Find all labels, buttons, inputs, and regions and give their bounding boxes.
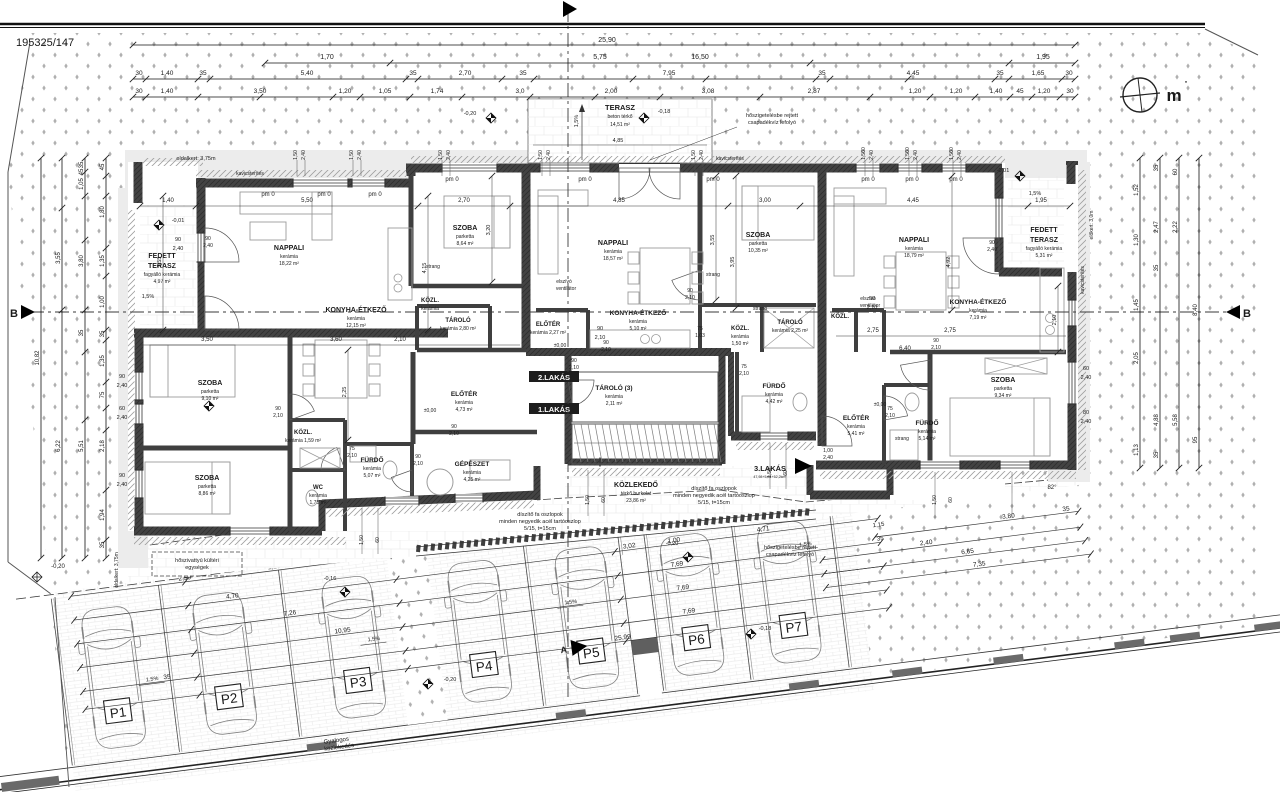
- svg-text:kerámia: kerámia: [605, 394, 623, 400]
- svg-text:1,52: 1,52: [1134, 184, 1140, 196]
- svg-text:KONYHA-ÉTKEZŐ: KONYHA-ÉTKEZŐ: [950, 297, 1007, 306]
- svg-text:45: 45: [1016, 88, 1024, 95]
- svg-text:kerámia: kerámia: [629, 319, 647, 325]
- svg-text:2,40: 2,40: [117, 383, 128, 389]
- svg-text:strang: strang: [706, 272, 720, 278]
- svg-text:TÁROLÓ: TÁROLÓ: [445, 316, 471, 324]
- svg-text:minden negyedik acél tartóoszl: minden negyedik acél tartóoszlop: [499, 519, 581, 525]
- svg-text:KÖZL.: KÖZL.: [731, 325, 749, 332]
- svg-text:3,0: 3,0: [515, 88, 524, 95]
- svg-text:35: 35: [409, 70, 417, 77]
- svg-text:35: 35: [79, 161, 85, 168]
- svg-text:-0,18: -0,18: [759, 626, 772, 632]
- svg-text:35: 35: [1154, 164, 1160, 171]
- svg-text:2,40: 2,40: [1081, 375, 1092, 381]
- svg-text:díszítő fa oszlopok: díszítő fa oszlopok: [517, 512, 563, 518]
- svg-text:kerámia: kerámia: [731, 334, 749, 340]
- svg-text:45: 45: [79, 168, 85, 175]
- svg-text:2,70: 2,70: [458, 198, 470, 204]
- svg-text:75: 75: [349, 446, 355, 452]
- svg-text:90: 90: [451, 424, 457, 430]
- svg-text:3,95: 3,95: [730, 257, 736, 268]
- svg-text:1,5%: 1,5%: [142, 294, 155, 300]
- svg-text:5,07 m²: 5,07 m²: [364, 473, 381, 479]
- svg-text:1,00: 1,00: [823, 448, 833, 454]
- svg-text:35: 35: [519, 70, 527, 77]
- svg-text:16,50: 16,50: [691, 54, 709, 61]
- svg-text:FÜRDŐ: FÜRDŐ: [762, 381, 785, 390]
- svg-text:95: 95: [1193, 436, 1199, 443]
- svg-text:1,70: 1,70: [320, 54, 334, 61]
- svg-text:1,5%: 1,5%: [1029, 191, 1042, 197]
- svg-text:kerámia: kerámia: [463, 470, 481, 476]
- svg-text:NAPPALI: NAPPALI: [598, 240, 628, 247]
- svg-text:1,30: 1,30: [1134, 234, 1140, 246]
- svg-text:-0,20: -0,20: [666, 541, 679, 547]
- svg-text:4,85: 4,85: [613, 198, 625, 204]
- svg-text:2,05: 2,05: [1134, 352, 1140, 364]
- svg-text:35: 35: [79, 329, 85, 336]
- svg-text:1,50: 1,50: [585, 495, 591, 505]
- svg-text:2,10: 2,10: [569, 365, 579, 371]
- svg-text:hőszivattyú kültéri: hőszivattyú kültéri: [175, 558, 219, 564]
- svg-text:parketta: parketta: [198, 484, 216, 490]
- svg-text:1,95: 1,95: [1035, 198, 1047, 204]
- svg-text:35: 35: [1062, 505, 1070, 513]
- svg-text:kerámia: kerámia: [604, 249, 622, 255]
- svg-text:90: 90: [119, 374, 125, 380]
- svg-text:parketta: parketta: [749, 241, 767, 247]
- svg-text:18,79 m²: 18,79 m²: [904, 253, 924, 259]
- svg-text:4,92: 4,92: [946, 257, 952, 268]
- svg-text:2,40: 2,40: [546, 150, 552, 160]
- svg-text:parketta: parketta: [456, 234, 474, 240]
- svg-text:60: 60: [1173, 168, 1179, 175]
- svg-text:2,11 m²: 2,11 m²: [606, 401, 623, 407]
- svg-text:18,22 m²: 18,22 m²: [279, 261, 299, 267]
- svg-text:23,86 m²: 23,86 m²: [626, 498, 646, 504]
- svg-text:2,10: 2,10: [885, 413, 895, 419]
- svg-text:pm 0: pm 0: [706, 177, 720, 183]
- svg-text:3,60: 3,60: [330, 337, 342, 343]
- svg-text:5,40: 5,40: [301, 70, 314, 77]
- svg-text:előkert: 3,0m: előkert: 3,0m: [1089, 211, 1095, 240]
- svg-text:TÁROLÓ (3): TÁROLÓ (3): [595, 383, 632, 392]
- svg-text:csapadékvíz lefolyó: csapadékvíz lefolyó: [766, 552, 814, 558]
- svg-text:3,20: 3,20: [486, 225, 492, 236]
- svg-text:1,13: 1,13: [1134, 444, 1140, 456]
- svg-text:kerámia: kerámia: [309, 493, 327, 499]
- svg-text:elszívó: elszívó: [860, 296, 876, 302]
- svg-text:SZOBA: SZOBA: [195, 475, 220, 482]
- svg-text:90: 90: [933, 338, 939, 344]
- svg-text:strang: strang: [753, 306, 767, 312]
- svg-text:3,55: 3,55: [56, 252, 62, 264]
- svg-text:30: 30: [1066, 88, 1074, 95]
- svg-text:4,85: 4,85: [613, 138, 624, 144]
- svg-text:KÖZLEKEDŐ: KÖZLEKEDŐ: [614, 480, 659, 489]
- svg-text:2,25: 2,25: [342, 387, 348, 398]
- svg-text:KONYHA-ÉTKEZŐ: KONYHA-ÉTKEZŐ: [610, 308, 667, 317]
- svg-text:kerámia: kerámia: [765, 392, 783, 398]
- svg-text:90: 90: [989, 240, 995, 246]
- svg-text:2,10: 2,10: [1052, 315, 1058, 326]
- svg-text:strang: strang: [895, 436, 909, 442]
- svg-text:2,40: 2,40: [1081, 419, 1092, 425]
- svg-text:2,40: 2,40: [173, 246, 184, 252]
- svg-text:1,95: 1,95: [1036, 54, 1050, 61]
- svg-text:-0,01: -0,01: [172, 218, 185, 224]
- svg-text:1,5%: 1,5%: [574, 115, 580, 128]
- svg-text:díszítő fa oszlopok: díszítő fa oszlopok: [691, 486, 737, 492]
- svg-text:90: 90: [119, 473, 125, 479]
- svg-text:P1: P1: [109, 704, 127, 721]
- svg-text:m: m: [1166, 86, 1181, 105]
- svg-text:ELŐTÉR: ELŐTÉR: [536, 320, 561, 328]
- svg-text:2,10: 2,10: [685, 295, 695, 301]
- svg-text:WC: WC: [313, 485, 324, 491]
- svg-text:6,40: 6,40: [899, 346, 911, 352]
- svg-text:1,03: 1,03: [695, 333, 705, 339]
- svg-text:3,00: 3,00: [759, 198, 771, 204]
- svg-text:35: 35: [1154, 451, 1160, 458]
- svg-text:5/15, t=15cm: 5/15, t=15cm: [698, 500, 730, 506]
- svg-text:P2: P2: [220, 690, 238, 707]
- svg-text:35: 35: [818, 70, 826, 77]
- svg-text:NAPPALI: NAPPALI: [899, 237, 929, 244]
- svg-text:1,50: 1,50: [691, 150, 697, 160]
- svg-text:SZOBA: SZOBA: [746, 232, 771, 239]
- svg-text:9,34 m²: 9,34 m²: [995, 393, 1012, 399]
- svg-text:1,20: 1,20: [1038, 88, 1051, 95]
- svg-text:oldalkert: 3,75m: oldalkert: 3,75m: [114, 552, 120, 588]
- svg-text:parketta: parketta: [201, 389, 219, 395]
- svg-text:-0,20: -0,20: [464, 111, 477, 117]
- svg-text:FÜRDŐ: FÜRDŐ: [360, 455, 383, 464]
- svg-text:kavicsterítés: kavicsterítés: [1080, 266, 1086, 294]
- svg-text:4,45: 4,45: [907, 198, 919, 204]
- svg-text:2,10: 2,10: [394, 337, 406, 343]
- svg-text:75: 75: [741, 364, 747, 370]
- svg-text:75: 75: [887, 406, 893, 412]
- svg-text:pm 0: pm 0: [368, 192, 382, 198]
- svg-text:3,55: 3,55: [157, 257, 163, 268]
- svg-text:60: 60: [948, 497, 954, 503]
- svg-text:60: 60: [783, 470, 789, 476]
- svg-text:-0,18: -0,18: [658, 109, 671, 115]
- svg-text:14,51 m²: 14,51 m²: [610, 122, 630, 128]
- svg-text:5/15, t=15cm: 5/15, t=15cm: [524, 526, 556, 532]
- svg-text:3,55: 3,55: [710, 235, 716, 246]
- svg-text:pm 0: pm 0: [317, 192, 331, 198]
- svg-text:2,40: 2,40: [913, 150, 919, 160]
- svg-text:TÁROLÓ: TÁROLÓ: [777, 318, 803, 326]
- svg-text:±0,00: ±0,00: [874, 402, 887, 408]
- svg-text:kerámia: kerámia: [847, 424, 865, 430]
- svg-text:4,73 m²: 4,73 m²: [456, 407, 473, 413]
- svg-text:8,86 m²: 8,86 m²: [199, 491, 216, 497]
- svg-text:-0,20: -0,20: [51, 564, 65, 570]
- svg-text:1,50: 1,50: [538, 150, 544, 160]
- svg-text:kerámia: kerámia: [918, 429, 936, 435]
- svg-text:1,05: 1,05: [379, 88, 392, 95]
- svg-text:kavicsterítés: kavicsterítés: [716, 156, 744, 162]
- svg-text:kerámia 2,25 m²: kerámia 2,25 m²: [772, 328, 808, 334]
- svg-text:pm 0: pm 0: [578, 177, 592, 183]
- svg-text:5,50: 5,50: [301, 198, 313, 204]
- svg-text:P7: P7: [785, 619, 803, 636]
- svg-text:195325/147: 195325/147: [16, 37, 74, 49]
- svg-text:-0,16: -0,16: [324, 576, 337, 582]
- svg-text:pm 0: pm 0: [261, 192, 275, 198]
- svg-text:2,40: 2,40: [301, 150, 307, 160]
- svg-text:2,40: 2,40: [987, 247, 997, 253]
- svg-text:P3: P3: [349, 674, 367, 691]
- svg-text:2,47: 2,47: [1154, 221, 1160, 233]
- svg-text:P6: P6: [687, 631, 705, 648]
- svg-text:30: 30: [1065, 70, 1073, 77]
- svg-text:3,50: 3,50: [201, 337, 213, 343]
- svg-text:18,57 m²: 18,57 m²: [603, 256, 623, 262]
- svg-text:pm 0: pm 0: [445, 177, 459, 183]
- svg-text:KÖZL.: KÖZL.: [421, 297, 439, 304]
- svg-text:kerámia: kerámia: [347, 316, 365, 322]
- svg-text:1,20: 1,20: [909, 88, 922, 95]
- svg-text:1,45: 1,45: [1134, 299, 1140, 311]
- svg-text:2,40: 2,40: [203, 243, 213, 249]
- svg-text:90: 90: [175, 237, 181, 243]
- svg-text:3,50: 3,50: [254, 88, 267, 95]
- svg-text:2,10: 2,10: [449, 431, 459, 437]
- svg-text:2,10: 2,10: [739, 371, 749, 377]
- svg-text:pm 0: pm 0: [905, 177, 919, 183]
- svg-text:5,58: 5,58: [1173, 414, 1179, 426]
- svg-text:oldalkert: 3,75m: oldalkert: 3,75m: [176, 156, 216, 162]
- svg-text:3,08: 3,08: [702, 88, 715, 95]
- svg-text:SZOBA: SZOBA: [991, 377, 1016, 384]
- svg-text:9,10 m²: 9,10 m²: [202, 396, 219, 402]
- svg-text:2,40: 2,40: [699, 150, 705, 160]
- svg-text:1,50: 1,50: [438, 150, 444, 160]
- svg-text:FÜRDŐ: FÜRDŐ: [915, 418, 938, 427]
- svg-text:1,50: 1,50: [767, 468, 773, 478]
- svg-text:kerámia: kerámia: [905, 246, 923, 252]
- svg-text:1,00: 1,00: [100, 296, 106, 308]
- svg-text:5,10 m²: 5,10 m²: [630, 326, 647, 332]
- svg-text:4,42 m²: 4,42 m²: [766, 399, 783, 405]
- svg-text:1,94: 1,94: [100, 509, 106, 521]
- svg-text:SZOBA: SZOBA: [453, 225, 478, 232]
- svg-text:60: 60: [375, 537, 381, 543]
- svg-text:B: B: [1243, 308, 1251, 320]
- svg-text:kerámia: kerámia: [280, 254, 298, 260]
- svg-text:kerámia 1,59 m²: kerámia 1,59 m²: [285, 438, 321, 444]
- svg-text:60: 60: [905, 147, 911, 153]
- svg-text:7,19 m²: 7,19 m²: [970, 315, 987, 321]
- svg-text:-0,20: -0,20: [444, 677, 457, 683]
- svg-text:2,10: 2,10: [413, 461, 423, 467]
- svg-text:1,35: 1,35: [100, 255, 106, 267]
- svg-text:2,40: 2,40: [446, 150, 452, 160]
- svg-text:8,40: 8,40: [1193, 304, 1199, 316]
- svg-text:1,05: 1,05: [79, 178, 85, 190]
- svg-text:beton térkő: beton térkő: [607, 114, 632, 120]
- svg-text:5,14 m²: 5,14 m²: [919, 436, 936, 442]
- svg-text:1,50: 1,50: [932, 495, 938, 505]
- svg-text:térkő burkolat: térkő burkolat: [621, 491, 652, 497]
- svg-text:8,64 m²: 8,64 m²: [457, 241, 474, 247]
- svg-text:90: 90: [275, 406, 281, 412]
- svg-text:4,15: 4,15: [422, 263, 428, 274]
- svg-text:7,95: 7,95: [663, 70, 676, 77]
- svg-text:10,82: 10,82: [35, 350, 41, 366]
- svg-text:SZOBA: SZOBA: [198, 380, 223, 387]
- svg-text:60: 60: [861, 147, 867, 153]
- svg-text:75: 75: [697, 326, 703, 332]
- svg-text:1,20: 1,20: [339, 88, 352, 95]
- svg-text:2,70: 2,70: [459, 70, 472, 77]
- svg-text:1.LAKÁS: 1.LAKÁS: [538, 405, 570, 414]
- svg-text:12,15 m²: 12,15 m²: [346, 323, 366, 329]
- svg-text:60: 60: [601, 497, 607, 503]
- svg-text:1,50: 1,50: [359, 535, 365, 545]
- svg-text:1,50: 1,50: [349, 150, 355, 160]
- svg-text:hőszigetelésbe rejtett: hőszigetelésbe rejtett: [764, 545, 816, 551]
- svg-text:1,40: 1,40: [990, 88, 1003, 95]
- svg-text:25,90: 25,90: [598, 37, 616, 44]
- svg-text:1,80: 1,80: [100, 206, 106, 218]
- svg-text:30: 30: [135, 88, 143, 95]
- svg-text:2,40: 2,40: [117, 482, 128, 488]
- svg-text:1,65: 1,65: [1032, 70, 1045, 77]
- svg-text:35: 35: [1154, 264, 1160, 271]
- svg-text:ventilátor: ventilátor: [556, 286, 577, 292]
- svg-text:3,80: 3,80: [79, 255, 85, 267]
- svg-text:1,50 m²: 1,50 m²: [732, 341, 749, 347]
- svg-text:82°: 82°: [1047, 485, 1057, 491]
- svg-text:KÖZL.: KÖZL.: [294, 429, 312, 436]
- svg-text:60: 60: [949, 147, 955, 153]
- svg-text:2,10: 2,10: [601, 347, 611, 353]
- svg-text:elszívó: elszívó: [556, 279, 572, 285]
- svg-text:60: 60: [1083, 366, 1089, 372]
- svg-text:GÉPÉSZET: GÉPÉSZET: [455, 459, 490, 468]
- svg-text:kerámia 2,27 m²: kerámia 2,27 m²: [530, 330, 566, 336]
- svg-text:minden negyedik acél tartóoszl: minden negyedik acél tartóoszlop: [673, 493, 755, 499]
- svg-text:1,50: 1,50: [293, 150, 299, 160]
- svg-text:˙: ˙: [1184, 79, 1188, 93]
- svg-text:2,40: 2,40: [357, 150, 363, 160]
- svg-text:P4: P4: [475, 658, 494, 675]
- svg-text:2,22: 2,22: [1173, 221, 1179, 233]
- svg-text:kerámia: kerámia: [455, 400, 473, 406]
- svg-text:2,18: 2,18: [100, 440, 106, 452]
- svg-text:10,35 m²: 10,35 m²: [748, 248, 768, 254]
- svg-text:2,40: 2,40: [957, 150, 963, 160]
- svg-text:2,75: 2,75: [867, 328, 879, 334]
- svg-text:KONYHA-ÉTKEZŐ: KONYHA-ÉTKEZŐ: [325, 305, 387, 314]
- svg-text:90: 90: [415, 454, 421, 460]
- svg-text:2.LAKÁS: 2.LAKÁS: [538, 373, 570, 382]
- svg-text:csapadékvíz lefolyó: csapadékvíz lefolyó: [748, 120, 796, 126]
- svg-text:90: 90: [597, 326, 603, 332]
- svg-text:90: 90: [205, 236, 211, 242]
- svg-text:1,40: 1,40: [161, 88, 174, 95]
- svg-text:6,22: 6,22: [56, 440, 62, 452]
- svg-text:KÖZL.: KÖZL.: [831, 313, 849, 320]
- svg-text:pm 0: pm 0: [861, 177, 875, 183]
- svg-text:kerámia 2,80 m²: kerámia 2,80 m²: [440, 326, 476, 332]
- svg-text:1,75 m²: 1,75 m²: [310, 500, 327, 506]
- svg-text:pm 0: pm 0: [949, 177, 963, 183]
- svg-text:90: 90: [687, 288, 693, 294]
- svg-text:TERASZ: TERASZ: [605, 103, 635, 112]
- svg-text:ELŐTÉR: ELŐTÉR: [843, 413, 870, 422]
- svg-text:±0,00: ±0,00: [554, 343, 567, 349]
- svg-text:-0,01: -0,01: [997, 168, 1010, 174]
- svg-text:2,10: 2,10: [931, 345, 941, 351]
- svg-text:2,40: 2,40: [869, 150, 875, 160]
- svg-text:2,87: 2,87: [808, 88, 821, 95]
- svg-text:5,51: 5,51: [79, 440, 85, 452]
- svg-text:kavicsterítés: kavicsterítés: [236, 171, 264, 177]
- svg-text:2,40: 2,40: [117, 415, 128, 421]
- svg-text:90: 90: [571, 358, 577, 364]
- svg-text:ELŐTÉR: ELŐTÉR: [451, 389, 478, 398]
- svg-text:1,40: 1,40: [162, 198, 174, 204]
- svg-text:±0,00: ±0,00: [424, 408, 437, 414]
- svg-text:2,10: 2,10: [347, 453, 357, 459]
- svg-text:35: 35: [996, 70, 1004, 77]
- svg-text:4,45: 4,45: [907, 70, 920, 77]
- svg-text:B: B: [10, 308, 18, 320]
- svg-text:75: 75: [100, 391, 106, 398]
- svg-text:45: 45: [100, 163, 106, 170]
- svg-text:kerámia: kerámia: [363, 466, 381, 472]
- svg-text:35: 35: [163, 673, 171, 681]
- svg-text:kerámia: kerámia: [421, 306, 439, 312]
- svg-text:2,75: 2,75: [944, 328, 956, 334]
- svg-text:5,75: 5,75: [593, 54, 607, 61]
- svg-text:30: 30: [135, 70, 143, 77]
- svg-text:4,88: 4,88: [1154, 414, 1160, 426]
- svg-text:1,74: 1,74: [431, 88, 444, 95]
- svg-text:80: 80: [1083, 410, 1089, 416]
- svg-text:60: 60: [119, 406, 125, 412]
- svg-text:ventilátor: ventilátor: [860, 303, 881, 309]
- svg-text:1,35: 1,35: [100, 355, 106, 367]
- svg-text:2,10: 2,10: [273, 413, 283, 419]
- svg-text:kerámia: kerámia: [969, 308, 987, 314]
- svg-text:2,40: 2,40: [823, 455, 833, 461]
- svg-text:parketta: parketta: [994, 386, 1012, 392]
- svg-text:4,25 m²: 4,25 m²: [464, 477, 481, 483]
- svg-text:2,00: 2,00: [605, 88, 618, 95]
- svg-text:35: 35: [199, 70, 207, 77]
- svg-text:1,20: 1,20: [950, 88, 963, 95]
- svg-text:hőszigetelésbe rejtett: hőszigetelésbe rejtett: [746, 113, 798, 119]
- svg-text:1,40: 1,40: [161, 70, 174, 77]
- svg-text:5,41 m²: 5,41 m²: [848, 431, 865, 437]
- svg-text:egységek: egységek: [185, 565, 209, 571]
- svg-text:90: 90: [603, 340, 609, 346]
- svg-text:NAPPALI: NAPPALI: [274, 245, 304, 252]
- svg-text:35: 35: [100, 541, 106, 548]
